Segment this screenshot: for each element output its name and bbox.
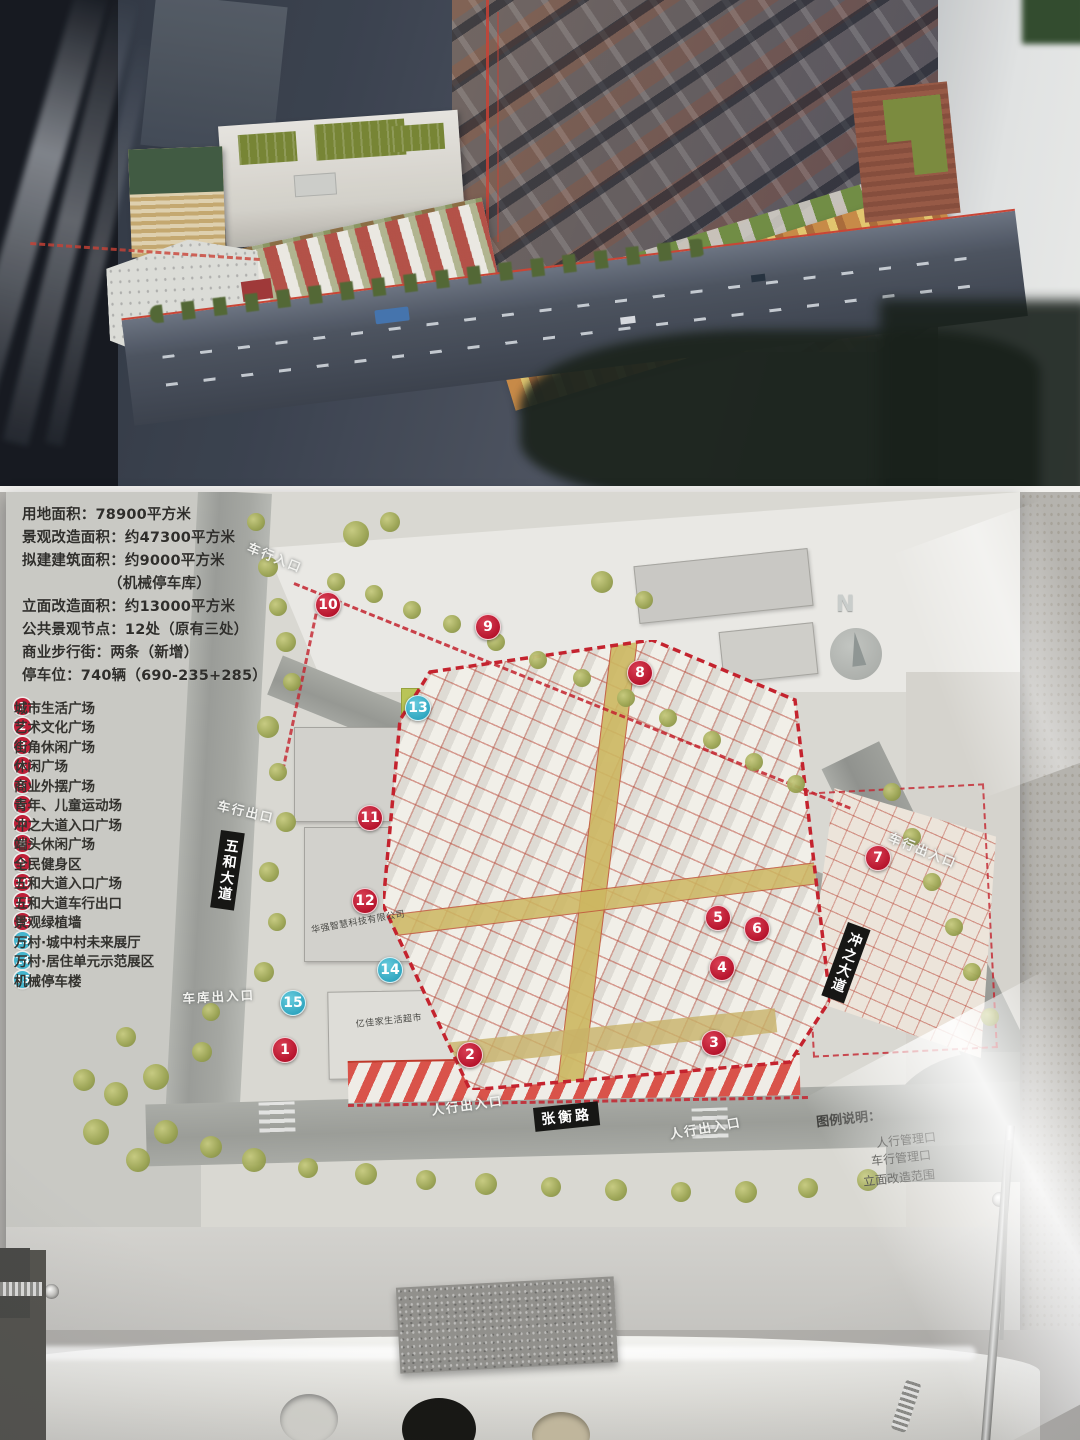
- gravel-ground-right: [1020, 492, 1080, 1440]
- render-dark-foliage: [880, 300, 1080, 492]
- site-plan-board: N 123456789101112131415车行入口车行出口五和大道车行出入口…: [6, 492, 1020, 1330]
- car: [620, 316, 636, 325]
- barrier-hole: [402, 1398, 476, 1440]
- green-roof: [391, 123, 445, 153]
- roof-structure: [294, 172, 337, 197]
- aerial-render-image: [0, 0, 1080, 492]
- render-brick-building: [851, 81, 960, 222]
- metal-spring: [0, 1282, 42, 1296]
- car: [751, 273, 766, 282]
- board-grommet: [44, 1284, 59, 1299]
- symbols-legend-title: 图例说明：: [815, 1105, 882, 1131]
- barrier-hole: [532, 1412, 590, 1440]
- render-mosaic-building: [128, 146, 226, 257]
- green-roof: [238, 131, 298, 165]
- bus: [374, 307, 409, 325]
- barrier-hole: [280, 1394, 338, 1440]
- photo-of-planning-board: N 123456789101112131415车行入口车行出口五和大道车行出入口…: [0, 0, 1080, 1440]
- render-tree-reflection: [1022, 0, 1080, 44]
- green-roof: [882, 94, 948, 178]
- concrete-block-weight: [396, 1276, 618, 1373]
- render-red-route-line: [497, 12, 499, 242]
- symbols-legend: 图例说明：人行管理口车行管理口立面改造范围: [6, 492, 1020, 1330]
- green-roof: [128, 146, 224, 195]
